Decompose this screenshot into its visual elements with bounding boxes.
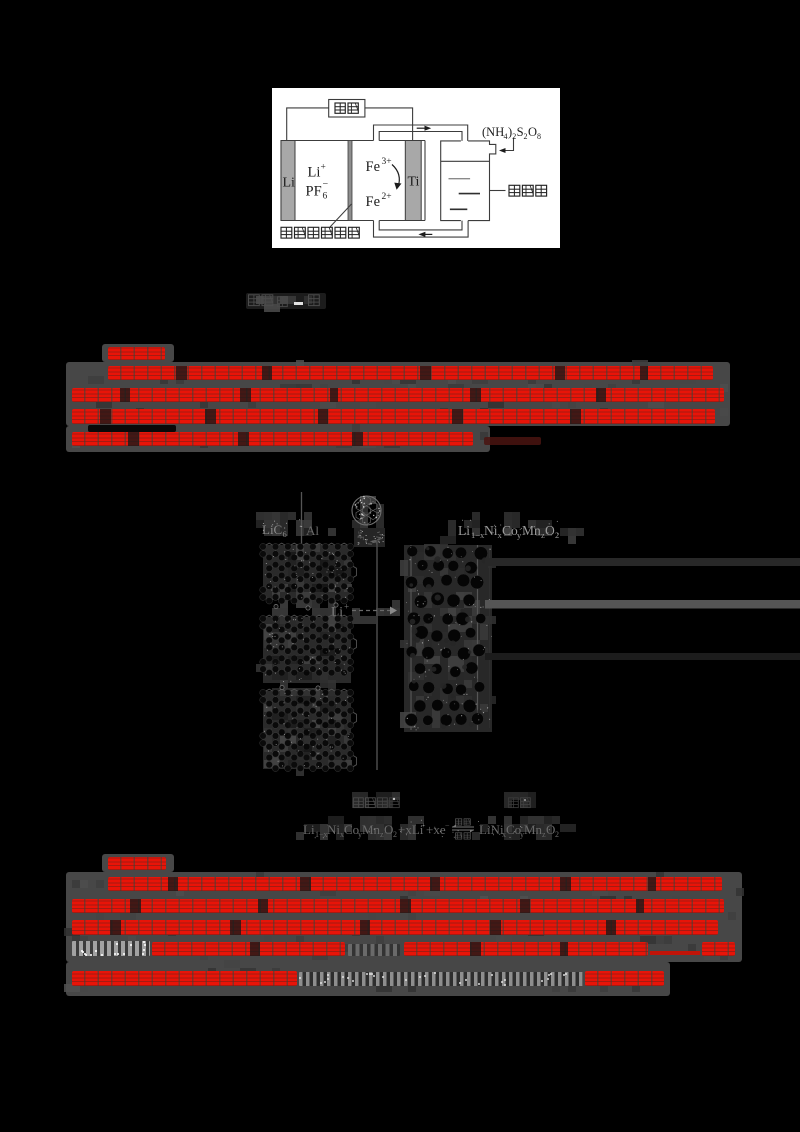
svg-text:−: − <box>445 821 450 830</box>
svg-text:2: 2 <box>555 830 559 839</box>
svg-text:O: O <box>546 822 555 837</box>
svg-text:Mn: Mn <box>522 523 541 538</box>
svg-text:8: 8 <box>537 132 541 141</box>
svg-text:Co: Co <box>502 523 518 538</box>
svg-text:LiC: LiC <box>262 522 282 537</box>
svg-text:+xLi: +xLi <box>398 822 424 837</box>
svg-text:Ni: Ni <box>327 822 340 837</box>
svg-text:Co: Co <box>344 822 359 837</box>
svg-text:1−x: 1−x <box>315 830 328 839</box>
svg-text:Li: Li <box>308 165 321 181</box>
svg-text:6: 6 <box>323 192 328 202</box>
svg-text:Li: Li <box>283 176 296 191</box>
svg-text:Fe: Fe <box>366 194 381 210</box>
svg-text:Ti: Ti <box>408 175 420 190</box>
svg-text:O: O <box>545 523 555 538</box>
svg-text:2+: 2+ <box>382 192 392 202</box>
svg-text:PF: PF <box>306 184 322 200</box>
svg-text:3+: 3+ <box>382 157 392 167</box>
svg-text:4: 4 <box>504 132 508 141</box>
svg-text:−: − <box>323 179 329 190</box>
svg-text:+: + <box>321 163 326 173</box>
svg-text:Al: Al <box>306 523 319 538</box>
svg-text:Mn: Mn <box>362 822 381 837</box>
svg-text:2: 2 <box>524 132 528 141</box>
svg-text:Co: Co <box>506 822 521 837</box>
svg-text:O: O <box>528 125 537 139</box>
svg-text:6: 6 <box>283 529 287 539</box>
svg-text:2: 2 <box>555 530 559 540</box>
svg-text:Li: Li <box>458 523 470 538</box>
svg-text:(NH: (NH <box>482 125 504 139</box>
svg-text:2: 2 <box>393 830 397 839</box>
svg-text:1−x: 1−x <box>471 530 485 540</box>
svg-text:O: O <box>384 822 393 837</box>
svg-text:2: 2 <box>512 132 516 141</box>
svg-text:Mn: Mn <box>524 822 543 837</box>
svg-text:+xe: +xe <box>426 822 446 837</box>
svg-text:Fe: Fe <box>366 159 381 175</box>
svg-text:Li: Li <box>303 822 315 837</box>
svg-text:LiNi: LiNi <box>479 822 504 837</box>
svg-text:Ni: Ni <box>484 523 498 538</box>
